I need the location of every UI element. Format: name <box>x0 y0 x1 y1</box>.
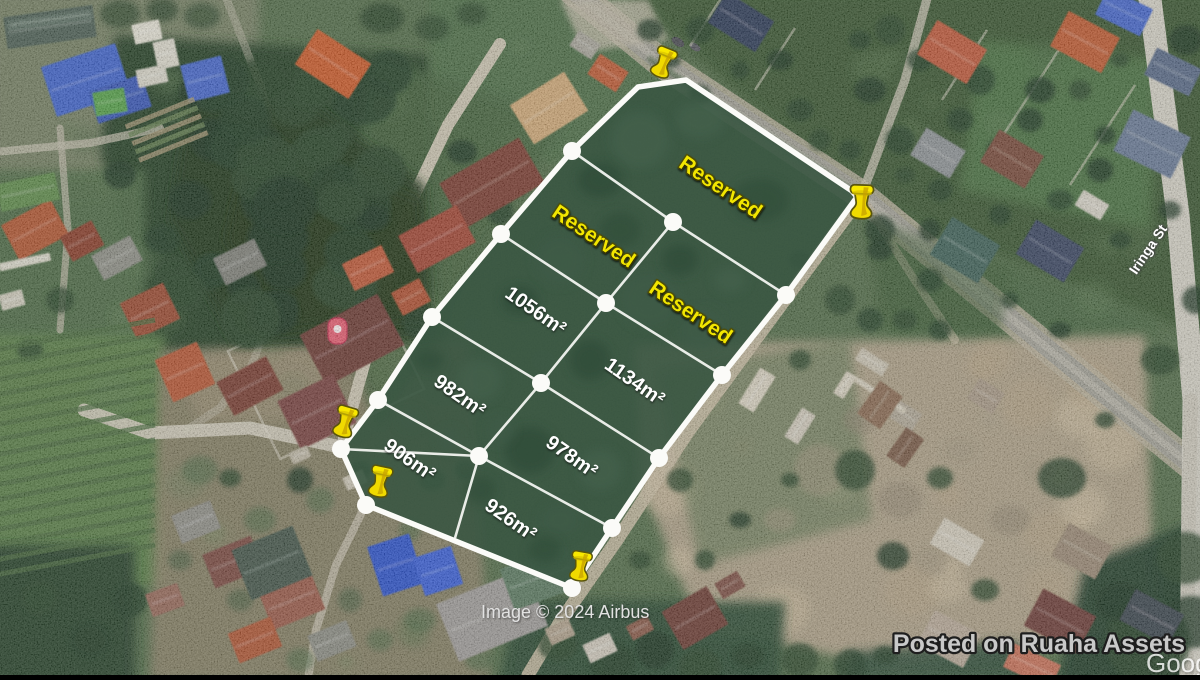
svg-text:Goog: Goog <box>1146 648 1200 675</box>
svg-text:Posted on Ruaha Assets: Posted on Ruaha Assets <box>893 630 1185 658</box>
svg-text:Image © 2024 Airbus: Image © 2024 Airbus <box>481 602 649 622</box>
